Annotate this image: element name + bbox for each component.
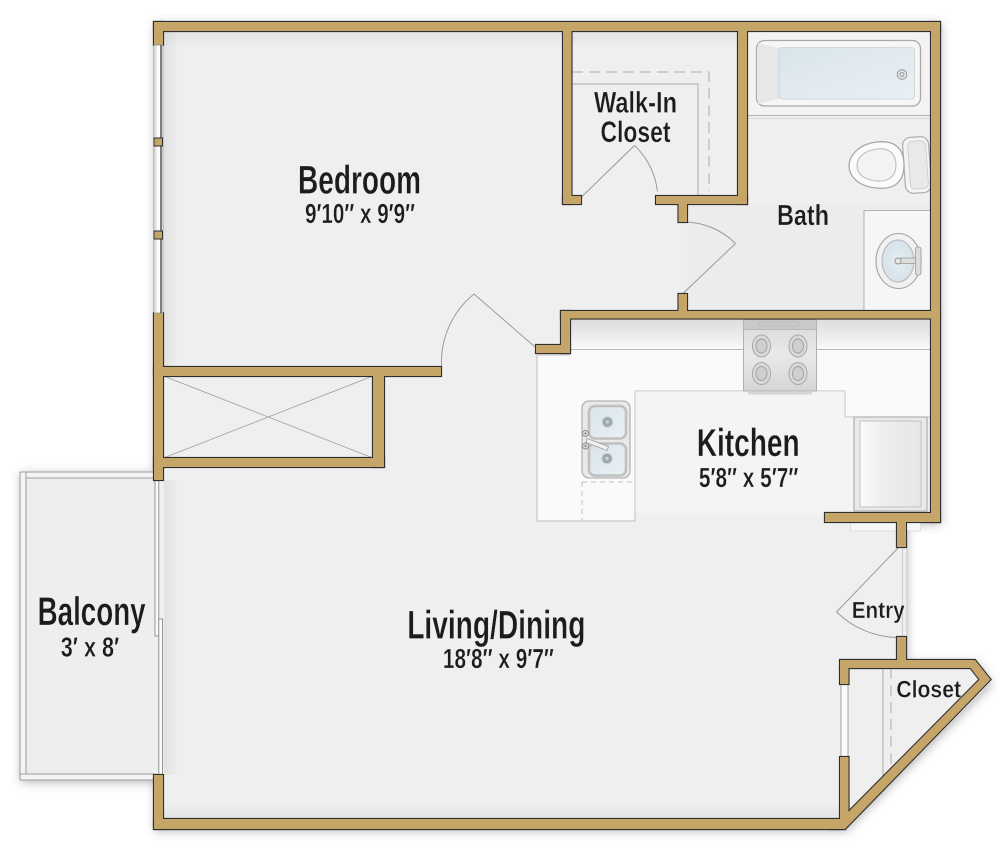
svg-text:Entry: Entry xyxy=(852,597,905,623)
svg-text:Living/Dining: Living/Dining xyxy=(407,604,585,648)
svg-text:Balcony: Balcony xyxy=(38,590,147,634)
svg-text:Walk-In: Walk-In xyxy=(594,86,677,119)
svg-text:Closet: Closet xyxy=(896,678,961,704)
svg-text:3′ x 8′: 3′ x 8′ xyxy=(61,632,120,663)
svg-text:Closet: Closet xyxy=(601,116,671,149)
svg-text:9′10″ x 9′9″: 9′10″ x 9′9″ xyxy=(305,198,415,229)
svg-text:Kitchen: Kitchen xyxy=(697,422,800,465)
svg-text:5′8″ x 5′7″: 5′8″ x 5′7″ xyxy=(699,462,798,493)
svg-text:Bath: Bath xyxy=(777,200,829,232)
svg-text:18′8″ x 9′7″: 18′8″ x 9′7″ xyxy=(443,643,554,674)
svg-text:Bedroom: Bedroom xyxy=(298,159,421,203)
